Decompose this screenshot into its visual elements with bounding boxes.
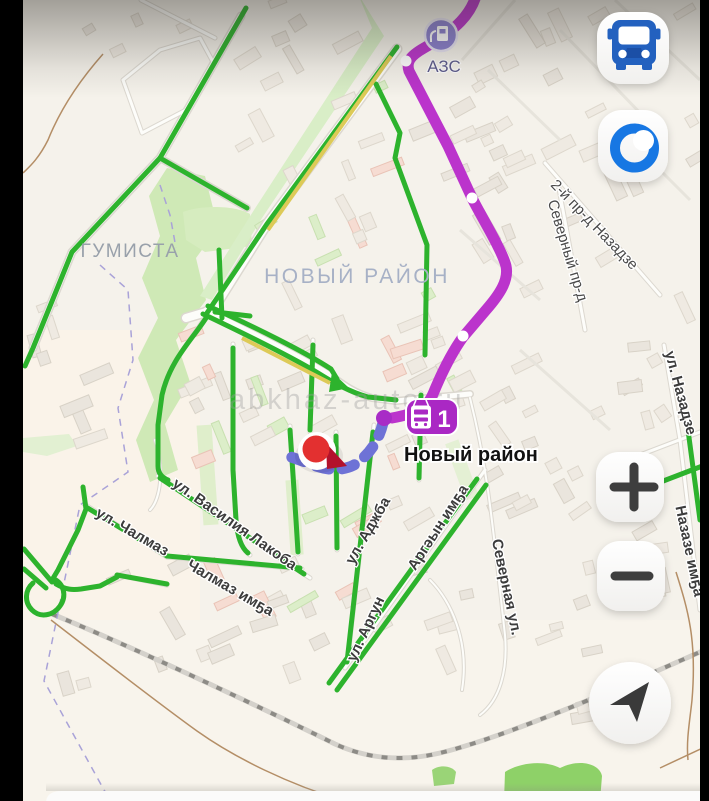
svg-text:Новый район: Новый район: [404, 444, 538, 466]
svg-text:1: 1: [437, 406, 450, 433]
svg-text:НОВЫЙ РАЙОН: НОВЫЙ РАЙОН: [264, 264, 450, 288]
svg-text:ГУМИСТА: ГУМИСТА: [80, 241, 179, 262]
